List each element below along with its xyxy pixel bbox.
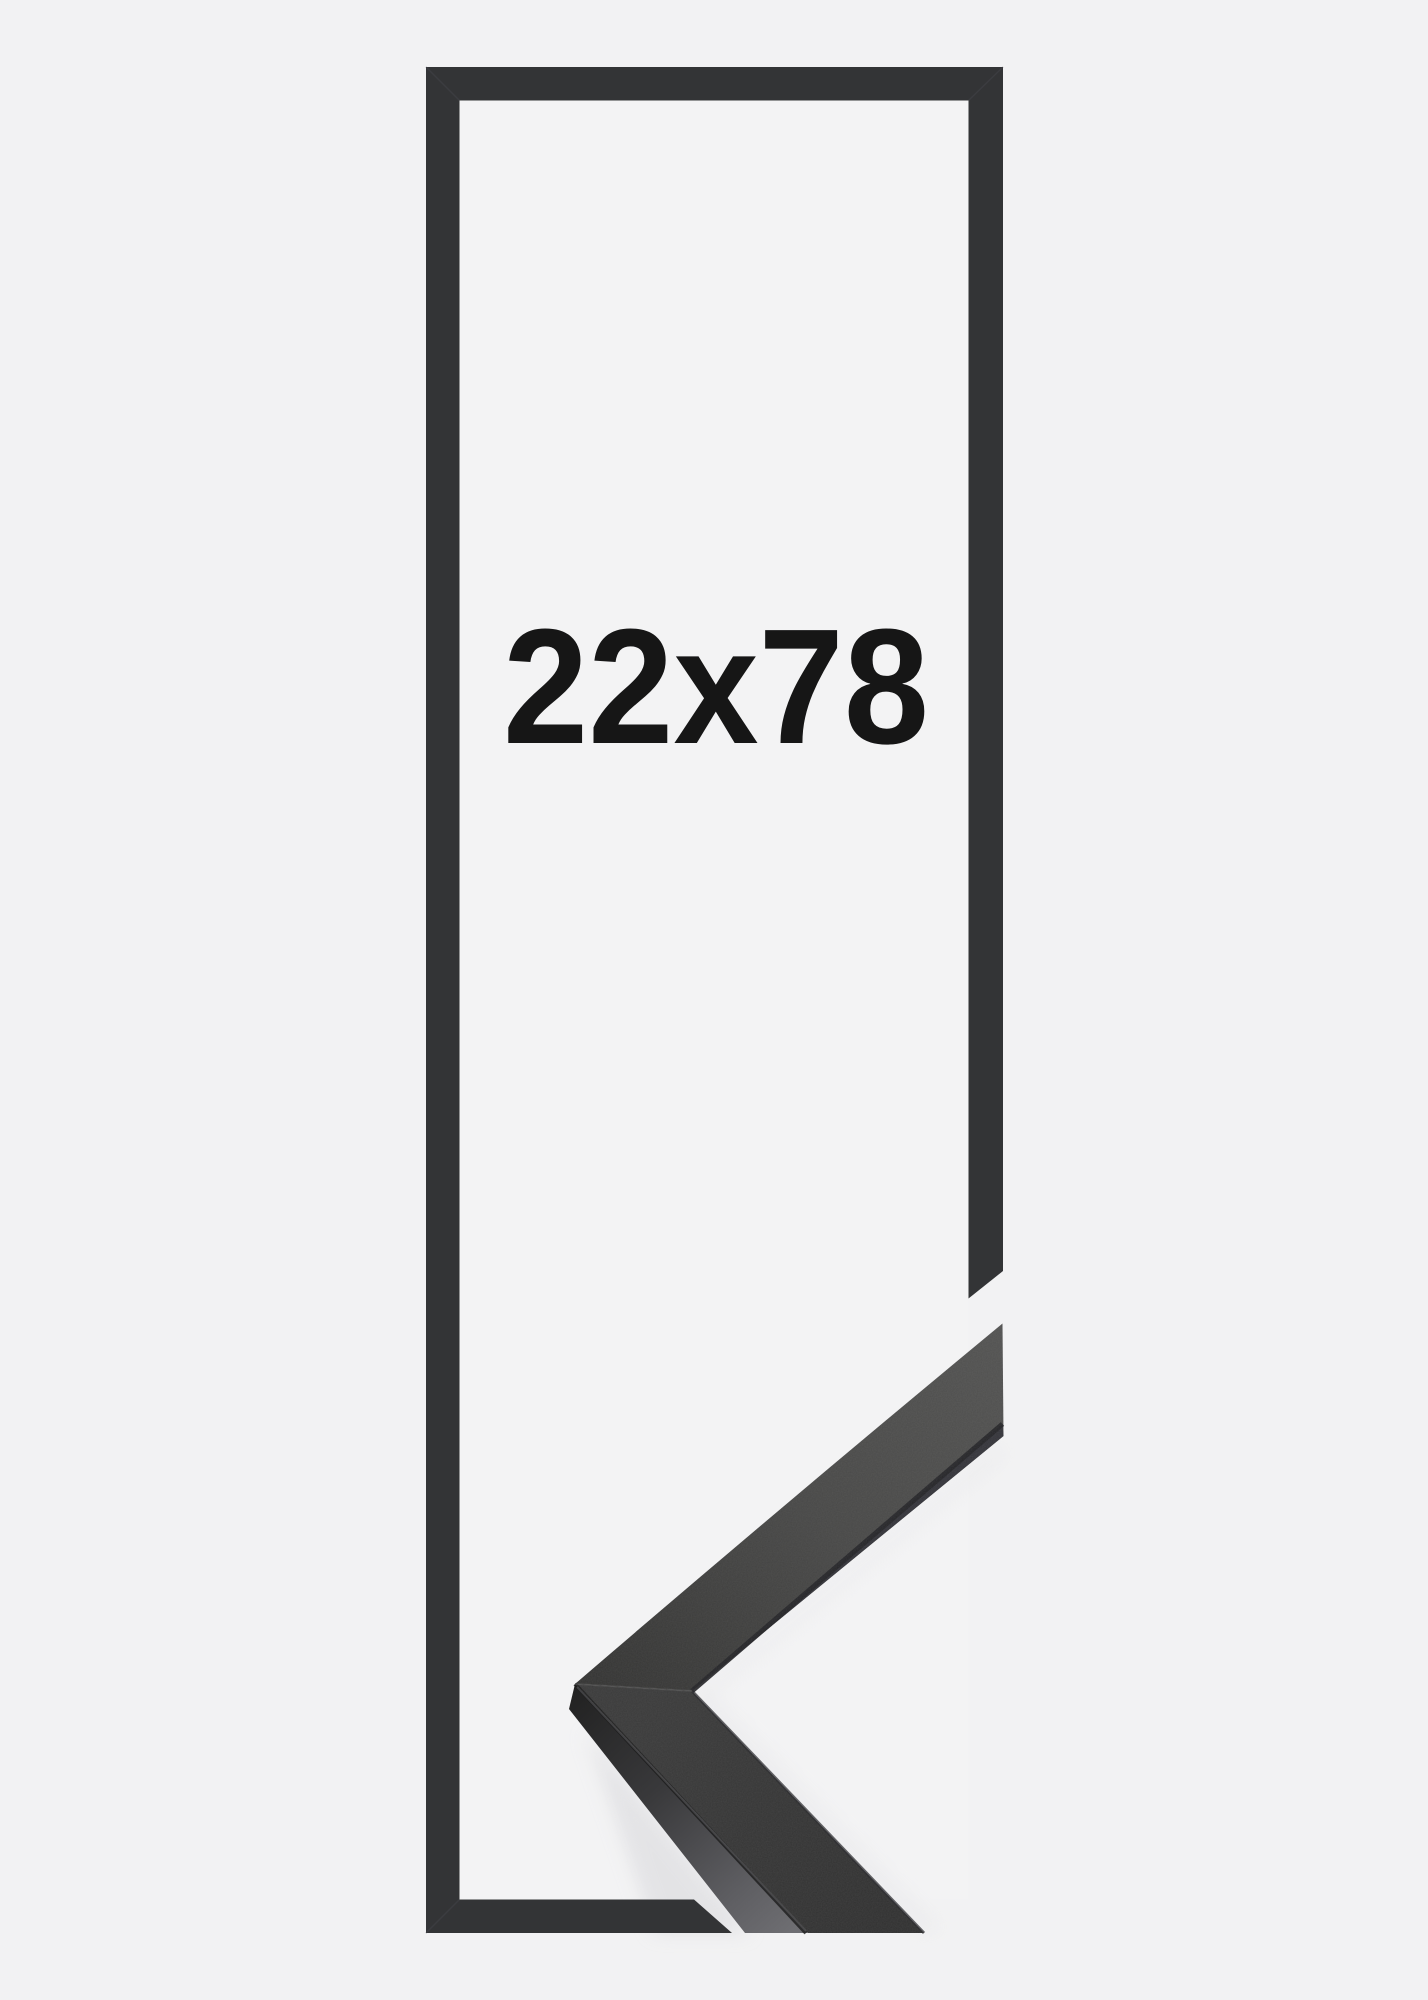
svg-text:22x78: 22x78: [503, 595, 929, 778]
